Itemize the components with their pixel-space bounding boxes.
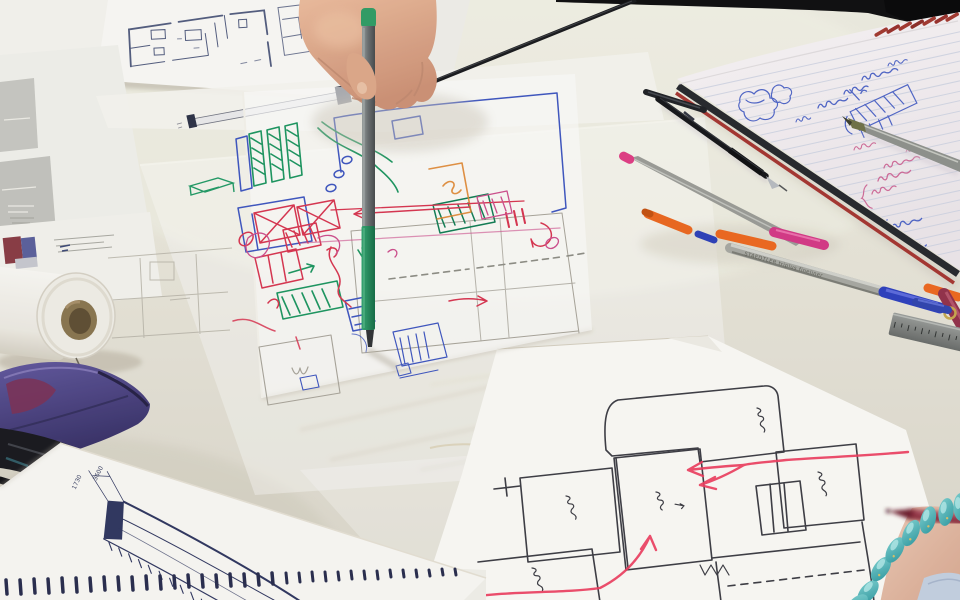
photo-canvas: 1730 3600 <box>0 0 960 600</box>
photo-architects-desk: 1730 3600 <box>0 0 960 600</box>
vignette <box>0 0 960 600</box>
